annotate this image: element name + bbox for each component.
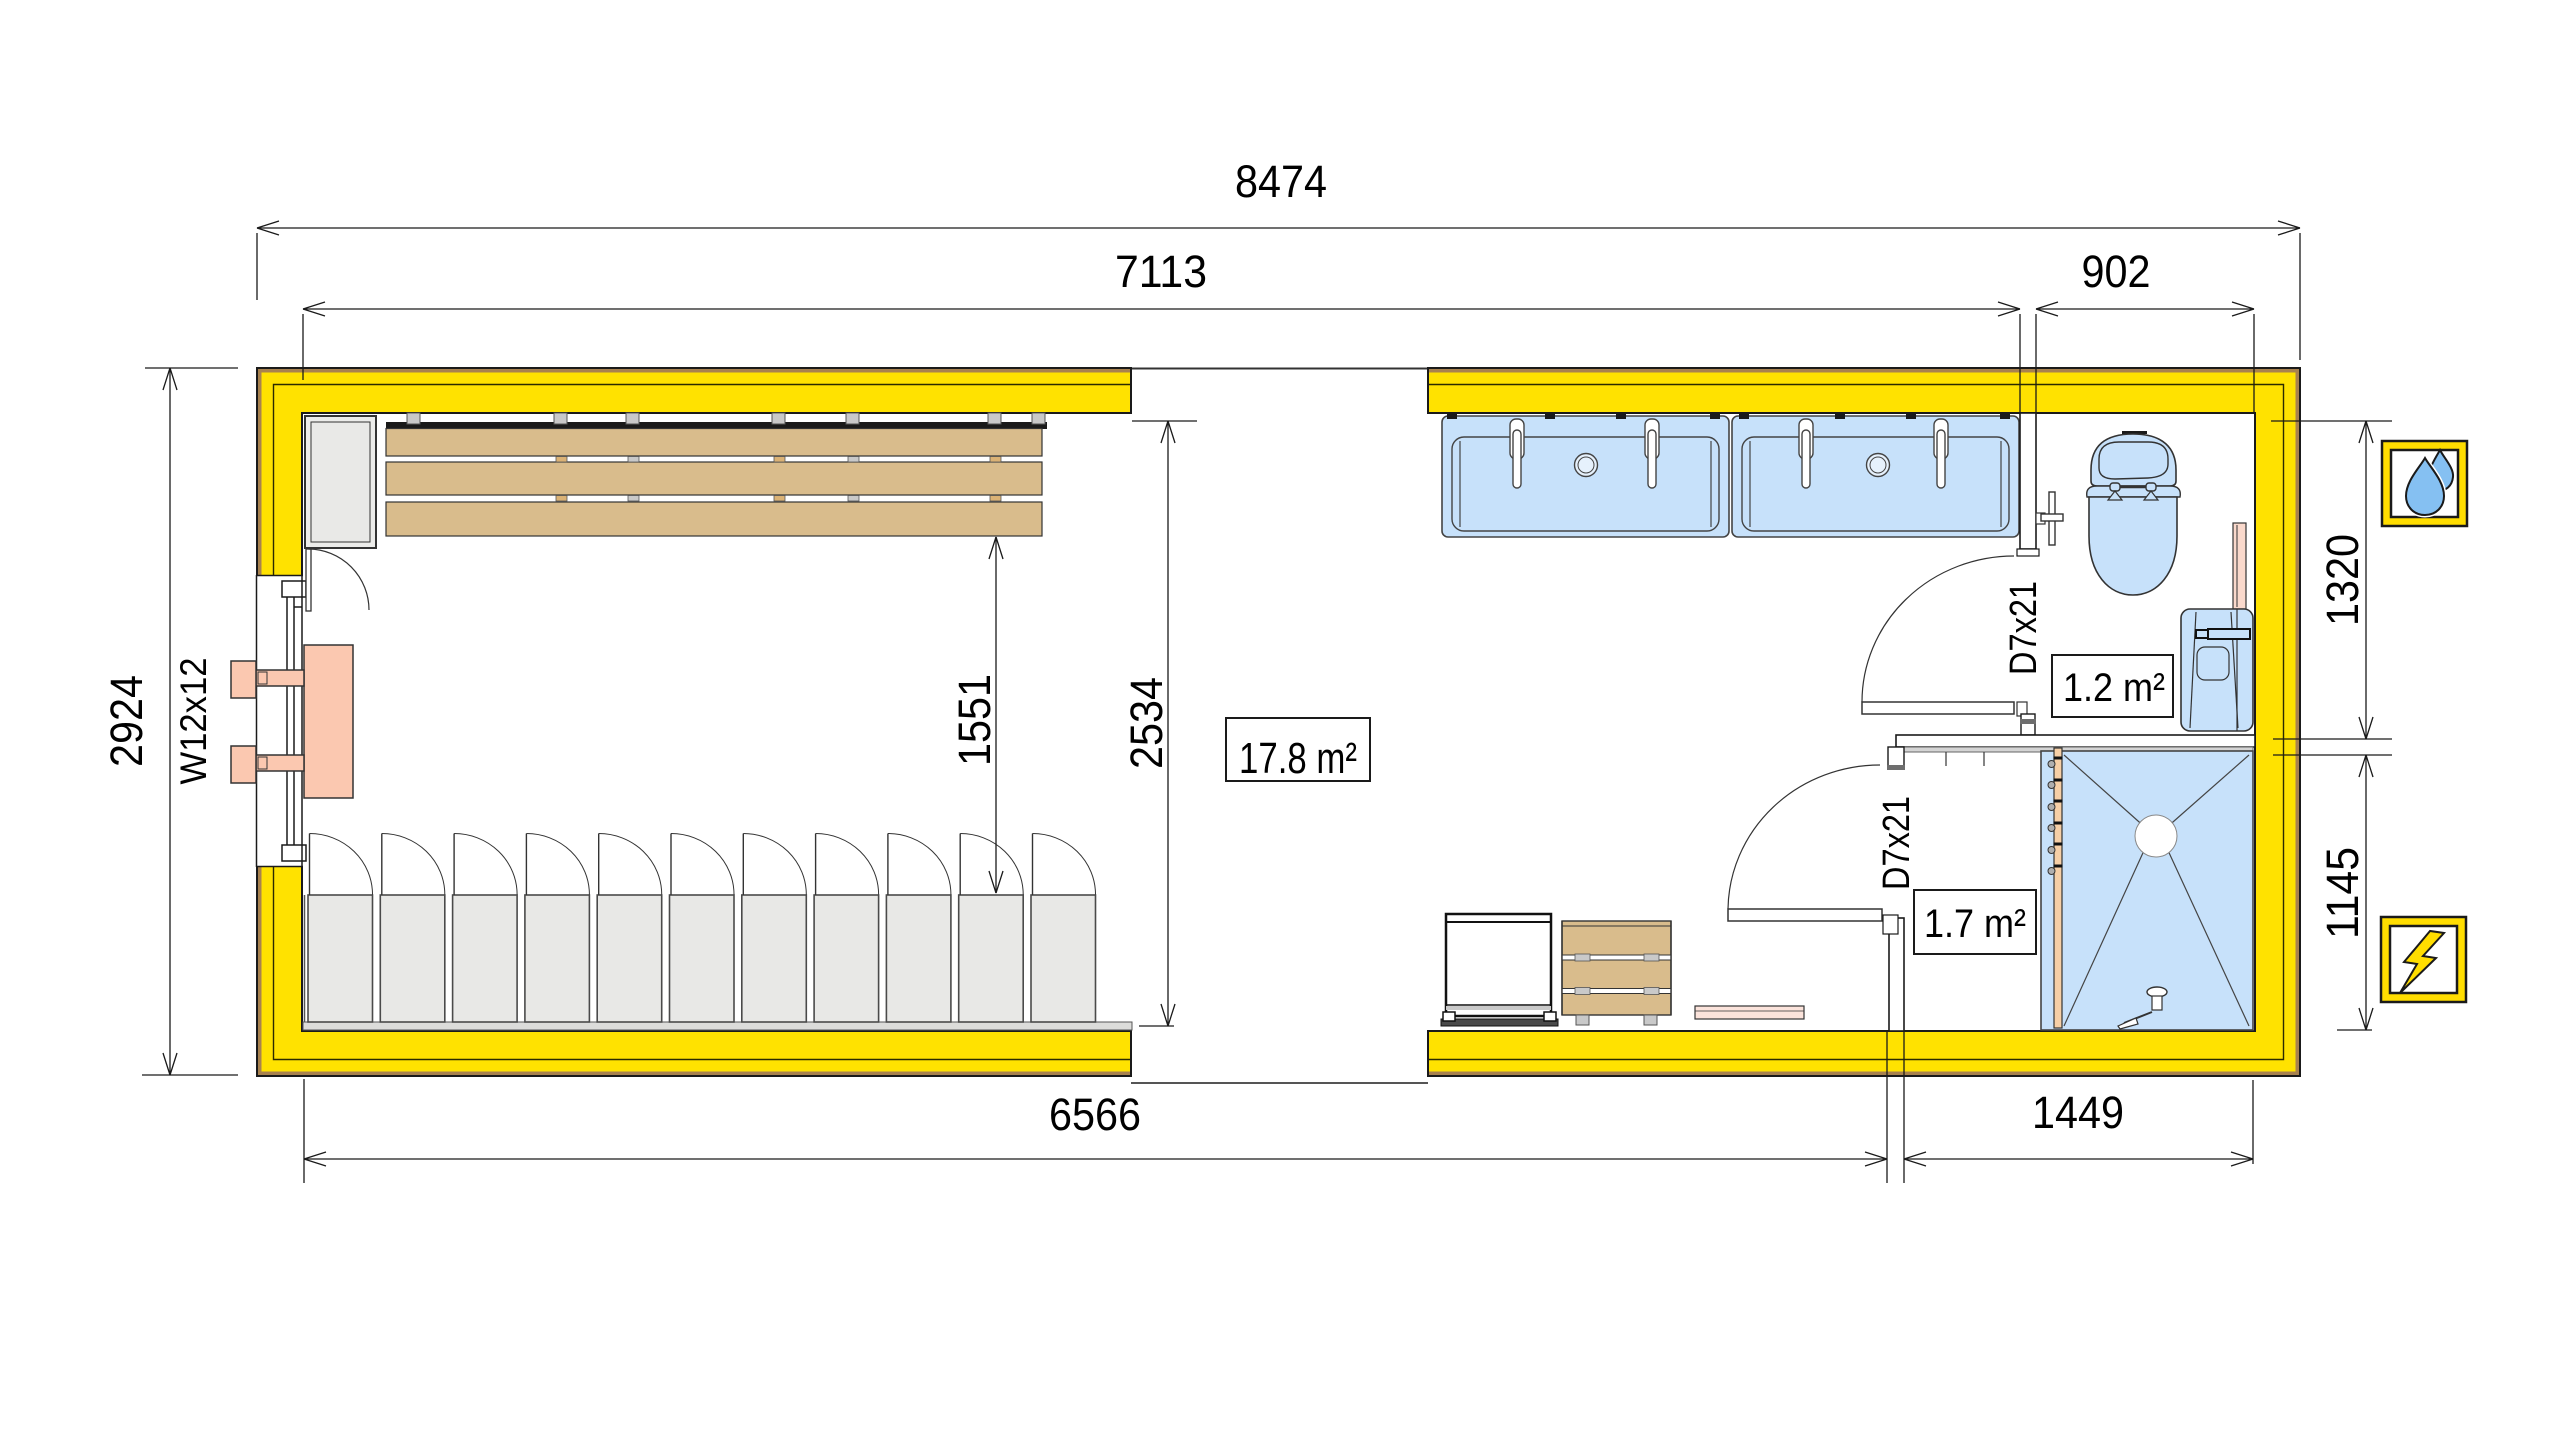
svg-text:W12x12: W12x12 <box>173 658 214 785</box>
svg-text:902: 902 <box>2082 246 2151 297</box>
svg-text:1449: 1449 <box>2032 1087 2124 1138</box>
svg-text:1145: 1145 <box>2317 847 2368 939</box>
svg-text:2924: 2924 <box>101 675 152 767</box>
svg-text:7113: 7113 <box>1115 246 1207 297</box>
svg-text:2534: 2534 <box>1121 677 1172 769</box>
svg-text:6566: 6566 <box>1049 1089 1141 1140</box>
svg-text:1320: 1320 <box>2317 534 2368 626</box>
svg-text:1551: 1551 <box>949 674 1000 766</box>
svg-text:17.8 m²: 17.8 m² <box>1239 734 1357 783</box>
svg-text:D7x21: D7x21 <box>2003 581 2045 675</box>
svg-text:D7x21: D7x21 <box>1876 796 1918 890</box>
svg-text:1.7 m²: 1.7 m² <box>1924 902 2026 946</box>
svg-text:1.2 m²: 1.2 m² <box>2063 666 2165 710</box>
svg-text:8474: 8474 <box>1235 156 1327 207</box>
